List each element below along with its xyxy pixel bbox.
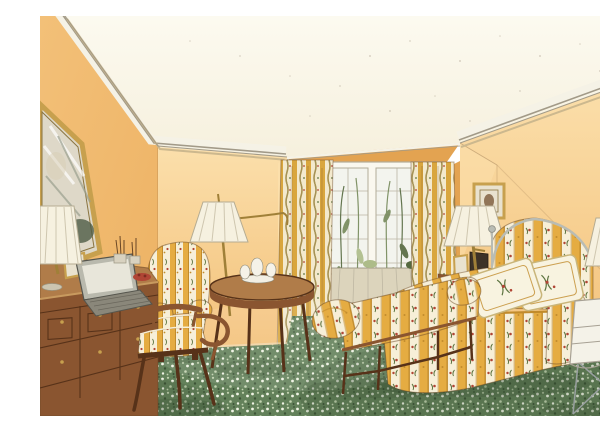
berry-bowl <box>133 273 151 281</box>
room-scene: Hotel guest room — watercolor interior r… <box>40 16 600 416</box>
desk-lamp <box>40 206 82 274</box>
room-illustration: Hotel guest room — watercolor interior r… <box>40 16 600 416</box>
plate <box>42 284 62 291</box>
